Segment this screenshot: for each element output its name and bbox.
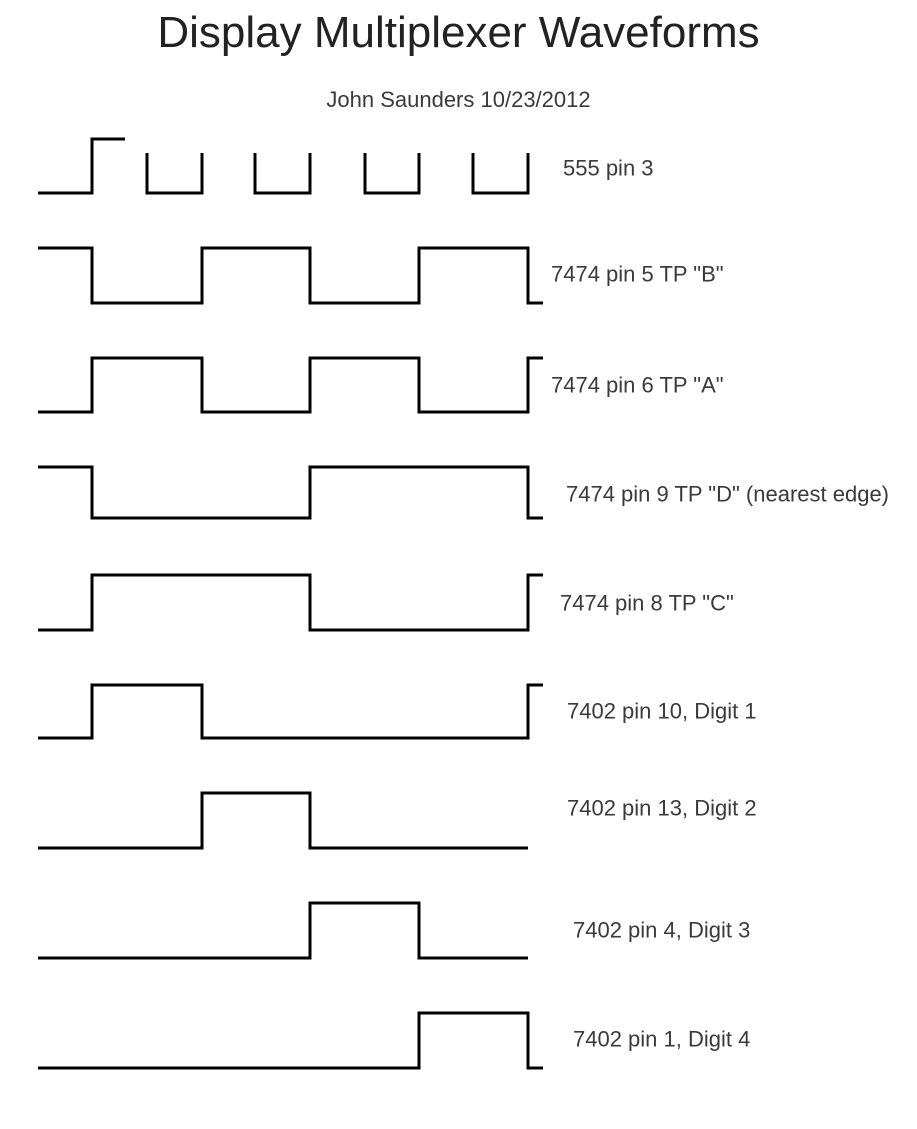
waveform-label: 555 pin 3 <box>563 156 654 181</box>
waveform-trace <box>38 1013 543 1068</box>
waveform-trace <box>255 153 310 193</box>
waveform-label: 7474 pin 8 TP "C" <box>560 591 734 616</box>
waveform-trace <box>473 153 528 193</box>
waveform-trace <box>38 793 528 848</box>
waveform-label: 7402 pin 1, Digit 4 <box>573 1027 750 1052</box>
waveform-row: 555 pin 3 <box>38 139 654 193</box>
waveform-row: 7402 pin 4, Digit 3 <box>38 903 750 958</box>
waveform-label: 7402 pin 10, Digit 1 <box>567 699 757 724</box>
waveform-diagram: 555 pin 37474 pin 5 TP "B"7474 pin 6 TP … <box>0 0 917 1129</box>
waveform-trace <box>147 153 202 193</box>
waveform-label: 7474 pin 6 TP "A" <box>551 373 724 398</box>
waveform-row: 7402 pin 1, Digit 4 <box>38 1013 750 1068</box>
waveform-label: 7474 pin 5 TP "B" <box>551 262 724 287</box>
waveform-label: 7474 pin 9 TP "D" (nearest edge) <box>566 482 889 507</box>
waveform-row: 7474 pin 9 TP "D" (nearest edge) <box>38 467 889 518</box>
waveform-row: 7474 pin 5 TP "B" <box>38 248 724 303</box>
waveform-trace <box>38 358 543 412</box>
waveform-row: 7474 pin 8 TP "C" <box>38 575 734 630</box>
waveform-label: 7402 pin 13, Digit 2 <box>567 796 757 821</box>
waveform-trace <box>365 153 419 193</box>
waveform-trace <box>38 139 125 193</box>
waveform-row: 7402 pin 13, Digit 2 <box>38 793 757 848</box>
waveform-row: 7402 pin 10, Digit 1 <box>38 685 757 738</box>
waveform-trace <box>38 685 543 738</box>
waveform-trace <box>38 467 543 518</box>
waveform-trace <box>38 903 528 958</box>
waveform-row: 7474 pin 6 TP "A" <box>38 358 724 412</box>
document-page: Display Multiplexer Waveforms John Saund… <box>0 0 917 1129</box>
waveform-label: 7402 pin 4, Digit 3 <box>573 918 750 943</box>
waveform-trace <box>38 248 543 303</box>
waveform-trace <box>38 575 543 630</box>
